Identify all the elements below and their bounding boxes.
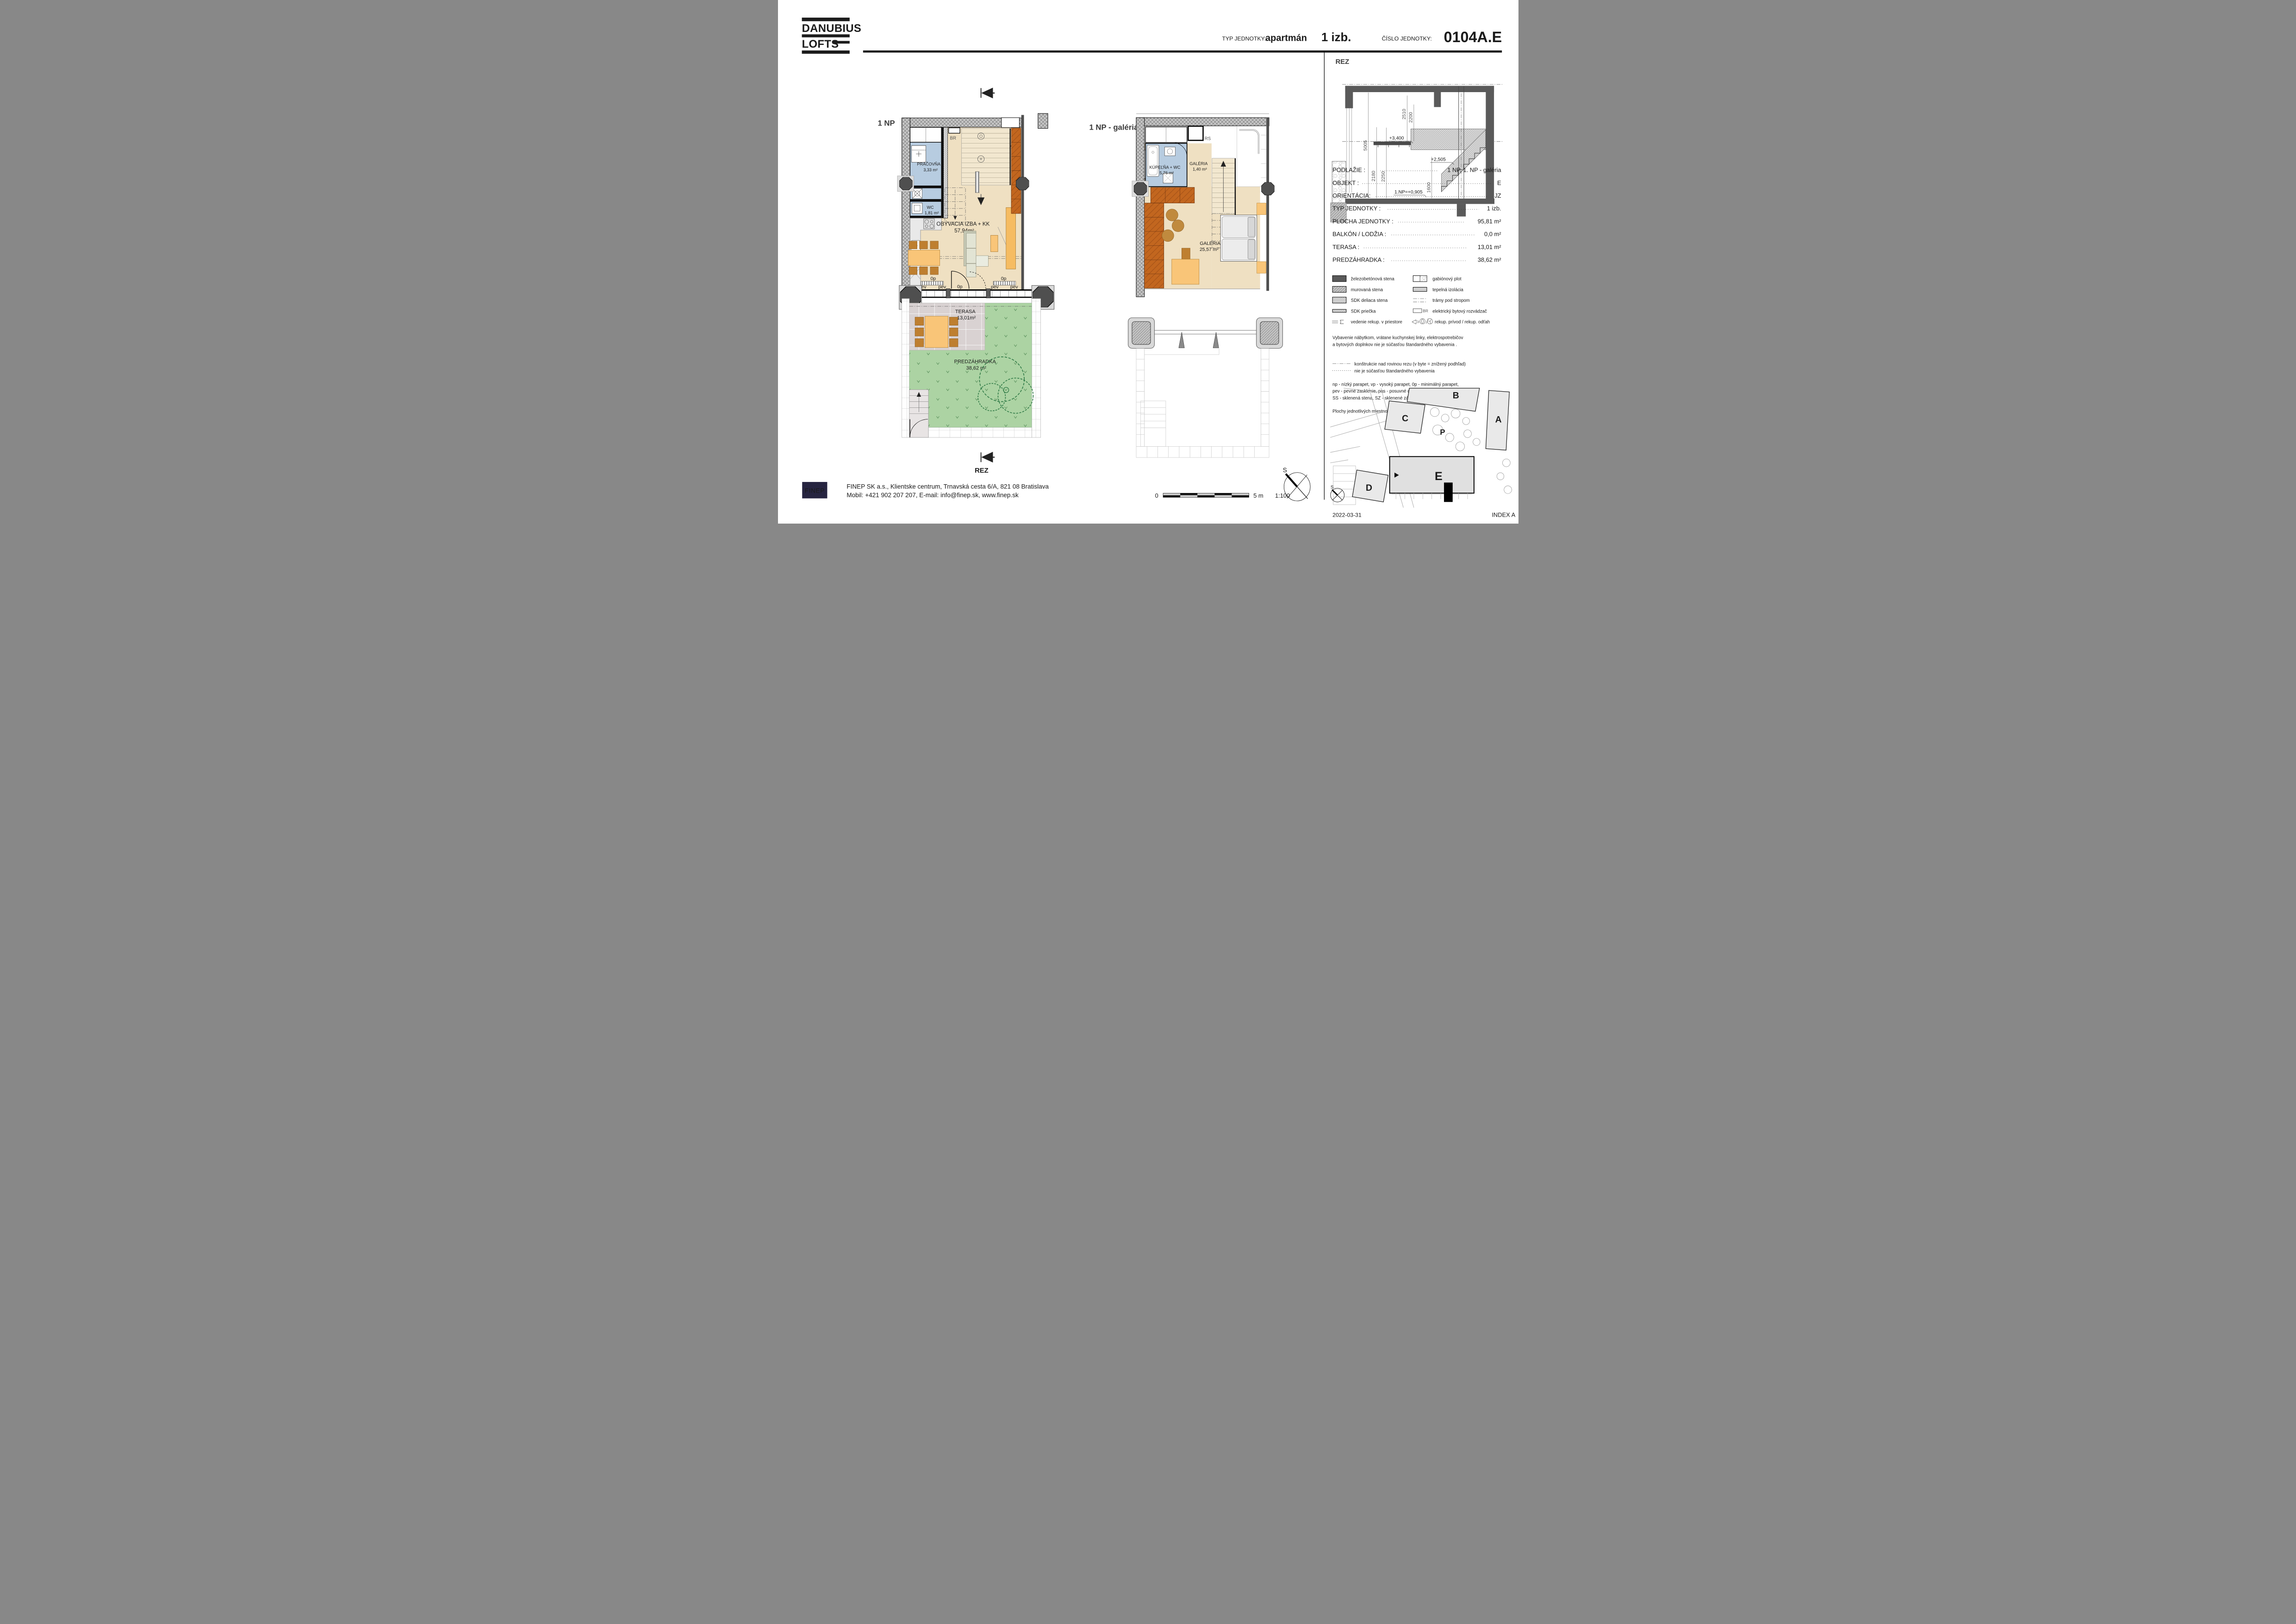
pouf — [1162, 230, 1174, 242]
pouf — [1172, 220, 1184, 232]
table-row: PODLAŽIE : 1 NP, 1. NP - galéria — [1332, 167, 1501, 174]
building-a: A — [1486, 390, 1509, 450]
building-c: C — [1385, 401, 1425, 433]
glazing-label: pev — [990, 285, 998, 290]
wall-left — [1136, 118, 1145, 297]
table-row: PREDZÁHRADKA : 38,62 m² — [1332, 256, 1501, 263]
partition-1 — [910, 186, 941, 188]
note-equipment-1: Vybavenie nábytkom, vrátane kuchynskej l… — [1332, 336, 1463, 341]
wetcore-right-wall — [941, 127, 944, 218]
washbasin-icon — [1164, 147, 1175, 156]
section-cut-arrow-bottom — [981, 452, 995, 462]
legend-item-rekup-inlet: rekup. prívod / rekup. odťah — [1412, 319, 1490, 325]
table-row: OBJEKT : E — [1332, 179, 1501, 186]
rekup-cabinet: RS — [1188, 126, 1211, 142]
row-label: PLOCHA JEDNOTKY : — [1332, 218, 1394, 225]
pouf — [1166, 209, 1178, 221]
svg-text:trámy pod stropom: trámy pod stropom — [1432, 298, 1470, 303]
compass-north-label: S — [1330, 485, 1333, 490]
unit-location-marker — [1444, 482, 1453, 502]
legend-item-insulation: tepelná izolácia — [1413, 287, 1463, 293]
dim-2200: 2200 — [1408, 112, 1413, 123]
chair — [919, 267, 927, 275]
terrace-table — [925, 316, 948, 348]
row-label: ORIENTÁCIA: — [1332, 192, 1370, 199]
header-rule — [863, 50, 1501, 53]
garden-label: PREDZÁHRADKA — [954, 358, 996, 364]
chair — [915, 328, 924, 336]
wall-right-dark — [1021, 115, 1024, 291]
unit-type-label: TYP JEDNOTKY: — [1222, 36, 1266, 42]
chair — [915, 338, 924, 347]
logo-rule-top — [802, 18, 849, 21]
row-label: PODLAŽIE : — [1332, 167, 1365, 174]
note-dotted: nie je súčasťou štandardného vybavenia — [1354, 369, 1435, 374]
scale-bar: 0 5 m 1:100 — [1155, 492, 1290, 499]
plan-1np: 1 NP — [877, 88, 1054, 474]
pracovna-label: PRÁČOVŇA — [917, 162, 940, 166]
chair — [930, 241, 938, 249]
terrace-dining-set — [915, 316, 958, 348]
glazing-label: pev — [938, 285, 946, 290]
entry-door-opening — [1001, 118, 1019, 127]
terasa-area: 13,01m² — [957, 315, 976, 321]
note-dashdot: konštrukcie nad rovinou rezu (v byte = z… — [1354, 362, 1465, 367]
table-row: PLOCHA JEDNOTKY : 95,81 m² — [1332, 218, 1501, 225]
row-label: PREDZÁHRADKA : — [1332, 256, 1384, 263]
chair — [949, 317, 958, 325]
garden-stairs — [909, 390, 928, 437]
plan-gallery: 1 NP - galéria RS KÚPEĽŇA + WC — [1089, 114, 1282, 457]
chair — [949, 328, 958, 336]
svg-text:vedenie rekup. v priestore: vedenie rekup. v priestore — [1350, 320, 1402, 325]
svg-text:gabiónový plot: gabiónový plot — [1432, 277, 1462, 282]
compass-north-label: S — [1282, 467, 1287, 474]
siteplan-compass: S — [1330, 485, 1344, 502]
row-value: E — [1497, 179, 1501, 186]
chair — [930, 267, 938, 275]
svg-text:rekup. prívod / rekup. odťah: rekup. prívod / rekup. odťah — [1435, 320, 1490, 325]
br-tag: BR — [1423, 309, 1428, 313]
building-d: D — [1352, 470, 1388, 502]
svg-text:A: A — [1495, 415, 1501, 425]
paving-border-left — [902, 299, 909, 437]
dim-2250: 2250 — [1381, 171, 1386, 182]
brand-logo: DANUBIUS LOFTS — [802, 18, 861, 54]
legend-item-beams: trámy pod stropom — [1413, 298, 1469, 303]
level-gallery: +3,400 — [1389, 136, 1404, 141]
chair — [909, 267, 917, 275]
svg-text:B: B — [1452, 390, 1459, 400]
nightstand — [1257, 262, 1266, 273]
beam-stub — [1434, 92, 1441, 107]
svg-text:tepelná izolácia: tepelná izolácia — [1432, 287, 1463, 293]
row-label: TERASA : — [1332, 244, 1359, 250]
row-label: OBJEKT : — [1332, 179, 1359, 186]
gal-small-area: 1,40 m² — [1193, 167, 1207, 172]
sheet-canvas: DANUBIUS LOFTS TYP JEDNOTKY: apartmán 1 … — [778, 0, 1518, 524]
parapet-label: 0p — [1001, 276, 1006, 281]
pracovna-area: 3,33 m² — [923, 168, 938, 172]
column — [897, 176, 914, 192]
partition-3 — [910, 216, 941, 219]
scale-ratio: 1:100 — [1275, 492, 1289, 499]
armchair — [990, 235, 997, 251]
row-label: TYP JEDNOTKY : — [1332, 205, 1381, 212]
glazing-label: pev — [1010, 285, 1018, 290]
desk-chair — [1182, 248, 1190, 259]
radiator — [993, 281, 1015, 285]
logo-dash — [833, 41, 849, 44]
legend-item-rekup-duct: vedenie rekup. v priestore — [1332, 320, 1402, 325]
logo-rule-bottom — [802, 50, 849, 54]
rekup-arrow-icon — [1412, 320, 1419, 324]
table-row: TYP JEDNOTKY : 1 izb. — [1332, 205, 1501, 212]
plan2-title: 1 NP - galéria — [1089, 123, 1139, 132]
section-title: REZ — [1335, 58, 1349, 66]
wall-right — [1486, 86, 1494, 199]
note-abbr-2: pev - pevné zasklenie, pos - posuvné dve… — [1332, 389, 1420, 394]
row-value: 1 NP, 1. NP - galéria — [1447, 167, 1501, 174]
main-compass: S — [1282, 467, 1310, 501]
footer-line1: FINEP SK a.s., Klientske centrum, Trnavs… — [846, 483, 1049, 490]
parapet-label: 0p — [930, 276, 936, 281]
gal-label: GALÉRIA — [1200, 240, 1220, 246]
floor-slab — [1345, 199, 1494, 204]
unit-number-label: ČÍSLO JEDNOTKY: — [1381, 35, 1431, 42]
column — [1261, 182, 1274, 195]
section-cut-arrow-top — [981, 88, 995, 98]
logo-rule-mid — [802, 34, 849, 37]
pillow — [1248, 217, 1255, 237]
svg-text:SDK deliaca stena: SDK deliaca stena — [1350, 298, 1388, 303]
partition-2 — [910, 200, 941, 202]
legend-item-sdk-partition: SDK priečka — [1332, 309, 1376, 314]
void-over-living — [1237, 126, 1266, 187]
dining-table — [908, 250, 940, 266]
date: 2022-03-31 — [1332, 512, 1362, 518]
chair — [915, 317, 924, 325]
scale-end: 5 m — [1253, 492, 1263, 499]
footer-line2: Mobil: +421 902 207 207, E-mail: info@fi… — [846, 492, 1019, 499]
paving-border-right — [1032, 299, 1040, 437]
note-equipment-2: a bytových doplnkov nie je súčasťou štan… — [1332, 343, 1457, 348]
svg-text:železobetónová stena: železobetónová stena — [1350, 277, 1394, 282]
row-value: 0,0 m² — [1484, 231, 1501, 237]
bathroom — [1145, 143, 1187, 187]
row-value: 1 izb. — [1487, 205, 1501, 212]
wall-left-head — [1345, 86, 1353, 108]
garden: TERASA 13,01m² PREDZÁHRADKA 38,62 m² — [902, 299, 1040, 437]
brand-line2: LOFTS — [802, 38, 839, 50]
rez-label: REZ — [975, 467, 989, 475]
scale-start: 0 — [1155, 492, 1158, 499]
footing — [1456, 204, 1465, 217]
index: INDEX A — [1492, 512, 1515, 518]
row-value: 95,81 m² — [1477, 218, 1501, 225]
wc-label: WC — [927, 205, 934, 210]
dining-set — [908, 241, 940, 275]
gallery-south-columns — [1128, 318, 1282, 348]
note-abbr-1: np - nízký parapet, vp - vysoký parapet,… — [1332, 382, 1459, 387]
pillow — [1248, 240, 1255, 259]
roof-slab — [1345, 86, 1494, 92]
br-label: BR — [950, 136, 956, 141]
svg-text:SDK priečka: SDK priečka — [1350, 309, 1375, 314]
chair — [909, 241, 917, 249]
rs-label: RS — [1204, 137, 1210, 142]
stove-icon — [923, 219, 934, 229]
wc-area: 1,81 m² — [924, 211, 939, 215]
unit-number-value: 0104A.E — [1444, 29, 1502, 45]
finep-logo-text: FINEP — [804, 487, 824, 494]
svg-text:elektrický bytový rozvádzač: elektrický bytový rozvádzač — [1432, 309, 1487, 314]
legend-item-masonry: murovaná stena — [1332, 287, 1383, 293]
svg-text:D: D — [1366, 483, 1372, 493]
legend: železobetónová stena murovaná stena SDK … — [1332, 275, 1490, 325]
bath-area: 5,76 m² — [1159, 171, 1174, 175]
wall-left — [902, 118, 910, 297]
column — [1132, 181, 1148, 197]
svg-text:murovaná stena: murovaná stena — [1350, 287, 1383, 293]
parapet-label: 0p — [957, 284, 963, 289]
chair — [919, 241, 927, 249]
ghost-garden-outline — [1136, 349, 1269, 457]
gal-small-label: GALÉRIA — [1189, 161, 1207, 166]
svg-text:C: C — [1402, 413, 1408, 424]
level-ground: 1.NP=+0,905 — [1394, 190, 1422, 195]
pier-top-right — [1038, 113, 1047, 128]
nightstand — [1257, 203, 1266, 215]
park-label: P — [1440, 428, 1445, 437]
wetcore-right-lining — [943, 127, 947, 218]
bathtub-icon — [1147, 145, 1159, 176]
row-label: BALKÓN / LODŽIA : — [1332, 231, 1386, 237]
building-e: E — [1389, 456, 1474, 502]
chair — [949, 338, 958, 347]
parking-rows — [1333, 466, 1355, 505]
pier — [986, 289, 990, 298]
legend-item-sdk-wall: SDK deliaca stena — [1332, 297, 1388, 303]
site-plan: B A C P D E — [1330, 388, 1515, 518]
legend-item-electric: BR elektrický bytový rozvádzač — [1413, 309, 1487, 314]
brand-line1: DANUBIUS — [802, 22, 861, 35]
wall-top — [1136, 118, 1269, 126]
wardrobe — [1006, 207, 1015, 269]
pier — [946, 289, 950, 298]
info-table: PODLAŽIE : 1 NP, 1. NP - galéria OBJEKT … — [1332, 167, 1501, 263]
terasa-label: TERASA — [955, 309, 976, 315]
level-mid: +2,505 — [1431, 157, 1446, 162]
unit-type-size: 1 izb. — [1321, 31, 1351, 44]
column — [1016, 177, 1029, 190]
table-row: BALKÓN / LODŽIA : 0,0 m² — [1332, 231, 1501, 237]
plan1-title: 1 NP — [877, 119, 895, 128]
unit-type-value: apartmán — [1265, 33, 1307, 43]
shelf-terracotta — [1011, 128, 1021, 213]
footer: FINEP FINEP SK a.s., Klientske centrum, … — [802, 482, 1049, 499]
wall-right-dark — [1266, 118, 1269, 291]
column-separator — [1324, 53, 1324, 500]
wet-core — [910, 127, 947, 218]
table-row: TERASA : 13,01 m² — [1332, 244, 1501, 250]
bath-label: KÚPEĽŇA + WC — [1149, 165, 1180, 169]
plan-sheet: DANUBIUS LOFTS TYP JEDNOTKY: apartmán 1 … — [778, 0, 1518, 524]
pier — [1178, 332, 1218, 348]
radiator — [921, 281, 943, 285]
legend-item-gabion: gabiónový plot — [1413, 275, 1462, 281]
svg-text:E: E — [1435, 470, 1443, 483]
row-value: JZ — [1494, 192, 1501, 199]
dim-2180: 2180 — [1371, 171, 1376, 181]
legend-item-concrete: železobetónová stena — [1332, 275, 1394, 281]
dim-2510: 2510 — [1402, 109, 1407, 119]
dim-5005: 5005 — [1363, 140, 1368, 151]
row-value: 38,62 m² — [1477, 256, 1501, 263]
living-label: OBÝVACIA IZBA + KK — [936, 221, 989, 227]
row-value: 13,01 m² — [1477, 244, 1501, 250]
gal-area: 25,57 m² — [1200, 247, 1219, 252]
desk — [1171, 259, 1199, 284]
